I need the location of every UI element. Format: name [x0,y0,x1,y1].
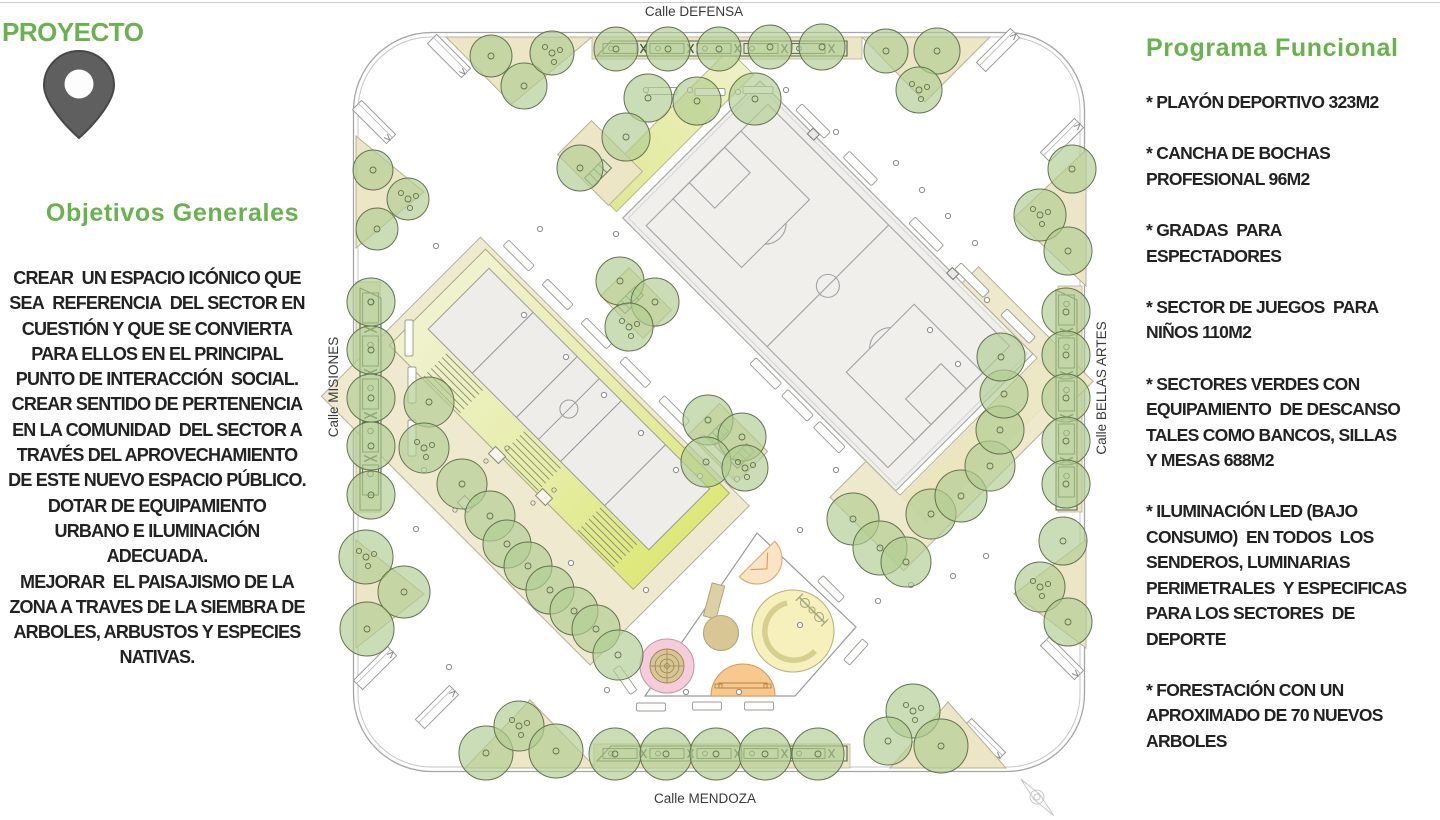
svg-text:Calle BELLAS ARTES: Calle BELLAS ARTES [1094,321,1109,454]
svg-text:Calle DEFENSA: Calle DEFENSA [645,4,743,19]
svg-text:Calle MENDOZA: Calle MENDOZA [654,791,756,806]
svg-text:Calle MISIONES: Calle MISIONES [326,337,341,438]
